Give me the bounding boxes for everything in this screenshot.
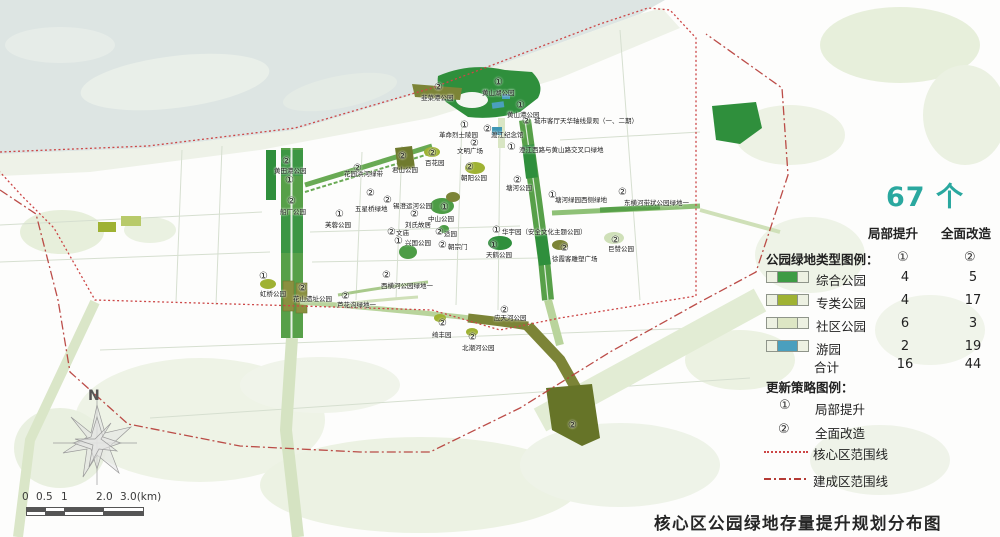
map-label-marker: ① xyxy=(259,272,268,282)
legend-row-value: 5 xyxy=(958,270,988,285)
map-label-text: 中山公园 xyxy=(428,216,454,223)
map-label-text: 东横河带状公园绿地一 xyxy=(624,200,689,207)
map-label-marker: ② xyxy=(438,241,447,251)
column-header-full: 全面改造 xyxy=(941,223,991,242)
map-label-marker: ② xyxy=(568,421,577,431)
strategy-mark-2: ② xyxy=(778,422,790,437)
legend-row-value: 2 xyxy=(890,339,920,354)
map-label-text: 刘氏故居 xyxy=(405,222,431,229)
map-label-text: 巨赞公园 xyxy=(608,246,634,253)
map-label-marker: ② xyxy=(434,83,443,93)
map-label-text: 应天河公园 xyxy=(494,315,527,322)
map-label-marker: ② xyxy=(465,163,474,173)
legend-row-label: 社区公园 xyxy=(816,316,866,335)
type-legend-title: 公园绿地类型图例： xyxy=(766,249,879,268)
legend-row-total: 合计 16 44 xyxy=(766,356,996,374)
map-label-marker: ① xyxy=(516,101,525,111)
strategy-label-2: 全面改造 xyxy=(815,423,865,442)
map-label-text: 天鹤公园 xyxy=(486,252,512,259)
legend-row-garden: 游园 2 19 xyxy=(766,338,996,356)
map-label-marker: ② xyxy=(560,244,569,254)
built-boundary-line-sample xyxy=(764,478,808,480)
map-label-marker: ② xyxy=(435,228,444,238)
legend-row-value: 19 xyxy=(958,339,988,354)
map-label-text: 兴国公园 xyxy=(405,240,431,247)
map-label-marker: ① xyxy=(440,203,449,213)
legend-row-special: 专类公园 4 17 xyxy=(766,292,996,310)
strategy-label-1: 局部提升 xyxy=(815,399,865,418)
planning-map-page: ②韭菜港公园①黄山湖公园①黄山港公园②城市客厅天华轴线景观（一、二期）②渡江纪念… xyxy=(0,0,1000,537)
map-label-marker: ② xyxy=(298,284,307,294)
scale-tick: 0.5 xyxy=(36,491,53,503)
legend-row-comprehensive: 综合公园 4 5 xyxy=(766,269,996,287)
legend-row-label: 综合公园 xyxy=(816,270,866,289)
map-label-text: 城市客厅天华轴线景观（一、二期） xyxy=(534,118,638,125)
core-boundary-line-sample xyxy=(764,451,808,453)
legend-row-value: 3 xyxy=(958,316,988,331)
legend-row-value: 17 xyxy=(958,293,988,308)
map-label-marker: ① xyxy=(285,176,294,186)
strategy-legend-title: 更新策略图例： xyxy=(766,377,854,396)
legend-row-value: 4 xyxy=(890,270,920,285)
legend-total-value: 44 xyxy=(958,357,988,372)
map-label-text: 君山公园 xyxy=(392,167,418,174)
column-header-partial: 局部提升 xyxy=(868,223,918,242)
column-mark-1: ① xyxy=(897,250,909,265)
scale-tick: 0 xyxy=(22,491,29,503)
scale-bar xyxy=(26,507,143,515)
map-label-text: 渡江纪念馆 xyxy=(491,132,524,139)
map-title: 核心区公园绿地存量提升规划分布图 xyxy=(654,510,942,534)
map-label-marker: ① xyxy=(492,226,501,236)
map-label-text: 朝阳公园 xyxy=(461,175,487,182)
map-label-marker: ① xyxy=(335,210,344,220)
map-label-text: 西横河公园绿地一 xyxy=(381,283,433,290)
map-label-marker: ① xyxy=(394,237,403,247)
scale-tick: 3.0(km) xyxy=(120,491,161,503)
map-label-text: 韭菜港公园 xyxy=(421,95,454,102)
scale-tick: 2.0 xyxy=(96,491,113,503)
map-label-text: 芦花沟绿地一 xyxy=(337,302,376,309)
map-label-marker: ② xyxy=(383,196,392,206)
map-label-text: 花园浜河绿带 xyxy=(344,171,383,178)
map-label-marker: ② xyxy=(366,189,375,199)
legend-row-label: 专类公园 xyxy=(816,293,866,312)
comprehensive-park-swatch xyxy=(766,271,809,283)
legend-row-value: 4 xyxy=(890,293,920,308)
legend-total-value: 16 xyxy=(890,357,920,372)
map-label-marker: ② xyxy=(282,157,291,167)
map-label-marker: ① xyxy=(489,241,498,251)
map-label-text: 黄山湖公园 xyxy=(482,90,515,97)
legend-row-community: 社区公园 6 3 xyxy=(766,315,996,333)
map-label-text: 北潮河公园 xyxy=(462,345,495,352)
built-boundary-label: 建成区范围线 xyxy=(813,471,888,490)
total-count-label: 67 个 xyxy=(886,175,964,214)
map-label-marker: ② xyxy=(468,333,477,343)
special-park-swatch xyxy=(766,294,809,306)
map-label-text: 虹桥公园 xyxy=(260,291,286,298)
core-boundary-label: 核心区范围线 xyxy=(813,444,888,463)
map-label-text: 芙蓉公园 xyxy=(325,222,351,229)
map-label-text: 船厂公园 xyxy=(280,209,306,216)
map-label-text: 五星桥绿地 xyxy=(355,206,388,213)
map-label-marker: ② xyxy=(438,319,447,329)
map-label-text: 塘河绿园西侧绿地 xyxy=(555,197,607,204)
map-label-marker: ② xyxy=(398,152,407,162)
scale-tick: 1 xyxy=(61,491,68,503)
map-label-marker: ② xyxy=(618,188,627,198)
map-label-marker: ② xyxy=(287,197,296,207)
river-sandbar xyxy=(5,27,115,63)
map-label-marker: ② xyxy=(410,210,419,220)
map-label-text: 适园 xyxy=(444,231,457,238)
map-label-text: 华宇园（安全文化主题公园） xyxy=(502,229,587,236)
map-label-marker: ② xyxy=(428,149,437,159)
map-label-marker: ① xyxy=(507,143,516,153)
map-label-text: 花山遗址公园 xyxy=(293,296,332,303)
map-label-text: 黄田港公园 xyxy=(274,168,307,175)
compass-north-label: N xyxy=(88,388,100,404)
map-label-text: 绮丰园 xyxy=(432,332,452,339)
map-label-marker: ② xyxy=(382,271,391,281)
legend-total-label: 合计 xyxy=(814,357,839,376)
map-label-text: 徐霞客雕塑广场 xyxy=(552,256,598,263)
map-label-text: 百花园 xyxy=(425,160,445,167)
legend-row-value: 6 xyxy=(890,316,920,331)
map-label-marker: ① xyxy=(460,121,469,131)
map-label-marker: ① xyxy=(494,78,503,88)
map-label-marker: ② xyxy=(522,117,531,127)
garden-swatch xyxy=(766,340,809,352)
map-label-text: 文明广场 xyxy=(457,148,483,155)
strategy-mark-1: ① xyxy=(779,398,791,413)
map-label-text: 朝宗门 xyxy=(448,244,468,251)
map-label-text: 澄江西路与黄山路交叉口绿地 xyxy=(519,147,604,154)
community-park-swatch xyxy=(766,317,809,329)
map-label-text: 塘河公园 xyxy=(506,185,532,192)
column-mark-2: ② xyxy=(964,250,976,265)
